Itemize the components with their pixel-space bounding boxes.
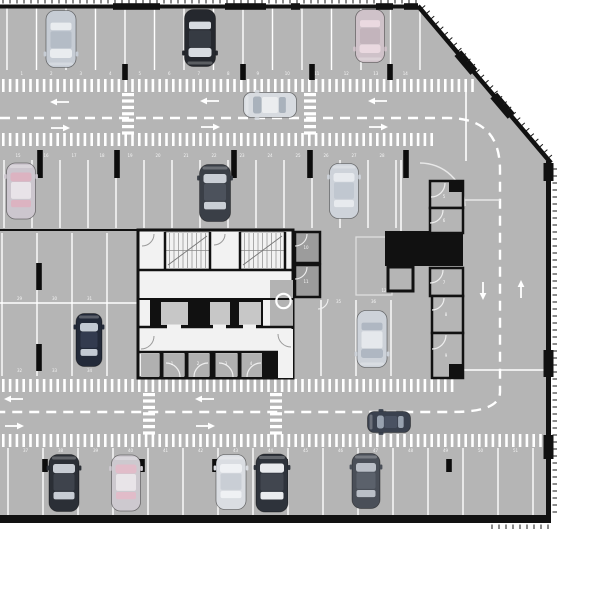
- stall-number: 49: [443, 448, 449, 453]
- structural-column: [231, 150, 237, 178]
- car: [353, 10, 387, 63]
- stall-number: 10: [285, 71, 291, 76]
- structural-column: [309, 64, 315, 80]
- stall-number: 43: [233, 448, 239, 453]
- stall-number: 29: [17, 296, 23, 301]
- svg-text:3: 3: [225, 361, 228, 366]
- stall-number: 37: [23, 448, 29, 453]
- svg-text:9: 9: [445, 353, 448, 358]
- stall-number: 42: [198, 448, 204, 453]
- structural-column: [307, 150, 313, 178]
- car: [214, 455, 249, 510]
- stall-number: 22: [211, 153, 217, 158]
- stall-number: 1: [20, 71, 23, 76]
- car: [182, 10, 218, 67]
- svg-text:8: 8: [445, 312, 448, 317]
- stall-number: 34: [87, 368, 93, 373]
- stall-number: 40: [128, 448, 134, 453]
- stall-number: 41: [163, 448, 169, 453]
- floor-plan: 1234567891011121314151617181920212223242…: [0, 0, 600, 600]
- stall-number: 2: [50, 71, 53, 76]
- car: [244, 90, 297, 120]
- stall-number: 50: [478, 448, 484, 453]
- stall-number: 36: [371, 299, 377, 304]
- stall-number: 24: [267, 153, 273, 158]
- stall-number: 46: [338, 448, 344, 453]
- structural-column: [240, 64, 246, 80]
- svg-text:2: 2: [197, 361, 200, 366]
- svg-text:11: 11: [303, 279, 309, 284]
- stall-number: 5: [138, 71, 141, 76]
- stall-number: 6: [168, 71, 171, 76]
- stall-number: 18: [99, 153, 105, 158]
- stall-number: 20: [155, 153, 161, 158]
- car: [197, 165, 233, 222]
- structural-column: [114, 150, 120, 178]
- stall-number: 14: [403, 71, 409, 76]
- stall-number: 27: [351, 153, 357, 158]
- stall-number: 4: [109, 71, 112, 76]
- stall-number: 13: [373, 71, 379, 76]
- bottom-wall: [0, 515, 551, 523]
- car: [327, 164, 361, 219]
- structural-column: [36, 344, 42, 371]
- stall-number: 16: [43, 153, 49, 158]
- svg-text:5: 5: [443, 194, 446, 199]
- stall-number: 7: [197, 71, 200, 76]
- svg-text:7: 7: [443, 280, 446, 285]
- structural-column: [37, 150, 43, 178]
- floor-plan-canvas: 1234567891011121314151617181920212223242…: [0, 0, 600, 600]
- stall-number: 25: [295, 153, 301, 158]
- stall-number: 31: [87, 296, 93, 301]
- car: [350, 454, 383, 509]
- stall-number: 33: [52, 368, 58, 373]
- stall-number: 30: [52, 296, 58, 301]
- structural-column: [403, 150, 409, 178]
- stall-number: 19: [127, 153, 133, 158]
- top-wall: [0, 5, 418, 9]
- right-wall: [546, 161, 551, 521]
- stall-number: 12: [344, 71, 350, 76]
- svg-text:6: 6: [443, 218, 446, 223]
- structural-column: [36, 263, 42, 290]
- car: [4, 163, 38, 219]
- svg-text:4: 4: [250, 361, 253, 366]
- stall-number: 51: [513, 448, 519, 453]
- structural-column: [387, 64, 393, 80]
- car: [47, 455, 82, 512]
- stall-number: 3: [79, 71, 82, 76]
- car: [355, 311, 390, 368]
- structural-column: [446, 459, 452, 472]
- stall-number: 21: [183, 153, 189, 158]
- stall-number: 28: [379, 153, 385, 158]
- stall-number: 44: [268, 448, 274, 453]
- stall-number: 9: [256, 71, 259, 76]
- structural-column: [122, 64, 128, 80]
- stall-number: 8: [227, 71, 230, 76]
- stall-number: 45: [303, 448, 309, 453]
- svg-text:12: 12: [381, 288, 387, 293]
- stall-number: 11: [314, 71, 320, 76]
- stall-number: 35: [336, 299, 342, 304]
- stall-number: 23: [239, 153, 245, 158]
- car: [368, 409, 411, 435]
- car: [109, 455, 143, 511]
- car: [74, 314, 105, 367]
- svg-text:10: 10: [303, 245, 309, 250]
- stall-number: 15: [15, 153, 21, 158]
- stall-number: 48: [408, 448, 414, 453]
- stall-number: 26: [323, 153, 329, 158]
- car: [254, 454, 291, 512]
- stall-number: 32: [17, 368, 23, 373]
- stall-number: 47: [373, 448, 379, 453]
- stall-number: 39: [93, 448, 99, 453]
- stall-number: 17: [71, 153, 77, 158]
- svg-text:1: 1: [171, 361, 174, 366]
- car: [44, 11, 79, 68]
- stall-number: 38: [58, 448, 64, 453]
